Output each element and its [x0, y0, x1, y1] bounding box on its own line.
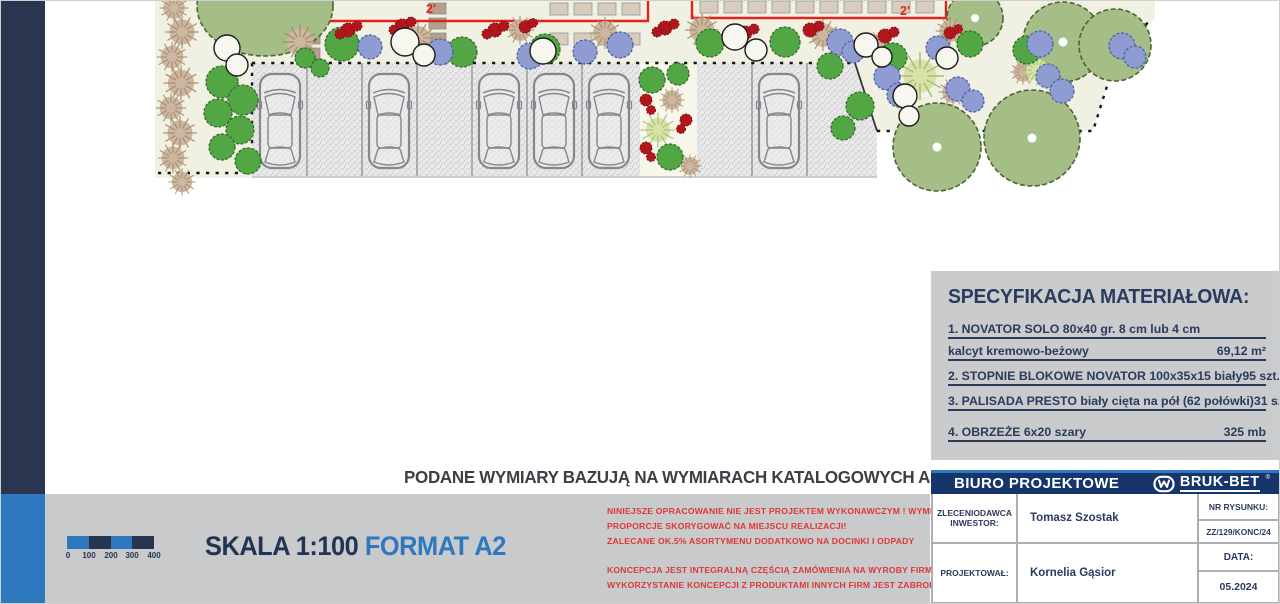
designer-label: PROJEKTOWAŁ: [933, 544, 1016, 602]
spec-item-value: 325 mb [1224, 425, 1266, 439]
scale-bar [67, 536, 154, 549]
scale-bar-segment [67, 536, 89, 549]
scale-tick-label: 400 [147, 551, 160, 560]
date-value: 05.2024 [1197, 572, 1278, 602]
spec-item-name: 2. STOPNIE BLOKOWE NOVATOR 100x35x15 bia… [948, 369, 1242, 383]
scale-bar-segment [132, 536, 154, 549]
client-name: Tomasz Szostak [1016, 494, 1197, 544]
drawing-number: ZZ/129/KONC/24 [1197, 521, 1278, 544]
spec-item: 2. STOPNIE BLOKOWE NOVATOR 100x35x15 bia… [948, 369, 1266, 386]
disclaimer-line: NINIEJSZE OPRACOWANIE NIE JEST PROJEKTEM… [607, 504, 952, 519]
spec-item-name: 3. PALISADA PRESTO biały cięta na pół (6… [948, 394, 1254, 408]
spec-item: 3. PALISADA PRESTO biały cięta na pół (6… [948, 394, 1266, 411]
left-rail-blue [0, 494, 45, 604]
spec-item-value: 95 szt. [1242, 369, 1280, 383]
scale-value: SKALA 1:100 [205, 531, 358, 561]
office-title: BIURO PROJEKTOWE [954, 475, 1119, 492]
scale-title: SKALA 1:100 FORMAT A2 [205, 531, 506, 562]
spec-item-name: 1. NOVATOR SOLO 80x40 gr. 8 cm lub 4 cm [948, 322, 1200, 336]
area-label: 2' [900, 4, 910, 18]
spec-item-value: 31 szt. [1254, 394, 1280, 408]
drawing-sheet: 2' 2' [0, 0, 1280, 604]
area-label: 2' [426, 2, 436, 16]
disclaimer-line: WYKORZYSTANIE KONCEPCJI Z PRODUKTAMI INN… [607, 578, 952, 593]
material-specification: SPECYFIKACJA MATERIAŁOWA: 1. NOVATOR SOL… [931, 271, 1280, 460]
brukbet-logo-icon [1153, 475, 1175, 493]
site-plan-drawing: 2' 2' [0, 0, 1280, 235]
scale-bar-segment [111, 536, 132, 549]
scale-bar-labels: 0 100 200 300 400 [67, 551, 154, 561]
format-value: FORMAT A2 [365, 531, 506, 561]
date-label: DATA: [1197, 544, 1278, 572]
spec-item-name: 4. OBRZEŻE 6x20 szary [948, 425, 1086, 439]
disclaimer-line: PROPORCJE SKORYGOWAĆ NA MIEJSCU REALIZAC… [607, 519, 952, 534]
title-block-header: BIURO PROJEKTOWE BRUK-BET ® [931, 470, 1280, 494]
project-info-table: ZLECENIODAWCA INWESTOR: Tomasz Szostak N… [931, 494, 1280, 604]
disclaimer-line: ZALECANE OK.5% ASORTYMENU DODATKOWO NA D… [607, 534, 952, 549]
disclaimer-line: KONCEPCJA JEST INTEGRALNĄ CZĘŚCIĄ ZAMÓWI… [607, 563, 952, 578]
spec-item: 4. OBRZEŻE 6x20 szary 325 mb [948, 425, 1266, 442]
scale-tick-label: 0 [66, 551, 70, 560]
drawing-number-label: NR RYSUNKU: [1197, 494, 1278, 521]
scale-tick-label: 200 [104, 551, 117, 560]
brand-name: BRUK-BET [1180, 475, 1260, 492]
spec-item: kalcyt kremowo-beżowy 69,12 m² [948, 344, 1266, 361]
registered-mark: ® [1266, 475, 1270, 481]
spec-item-value: 69,12 m² [1217, 344, 1266, 358]
scale-bar-segment [89, 536, 111, 549]
scale-tick-label: 300 [125, 551, 138, 560]
client-label-line: ZLECENIODAWCA [937, 508, 1012, 519]
spec-item: 1. NOVATOR SOLO 80x40 gr. 8 cm lub 4 cm [948, 322, 1266, 339]
scale-tick-label: 100 [82, 551, 95, 560]
client-label: ZLECENIODAWCA INWESTOR: [933, 494, 1016, 544]
footer-band: 0 100 200 300 400 SKALA 1:100 FORMAT A2 … [45, 494, 930, 604]
brand-logo: BRUK-BET ® [1153, 475, 1270, 493]
designer-name: Kornelia Gąsior [1016, 544, 1197, 602]
spec-item-name: kalcyt kremowo-beżowy [948, 344, 1089, 358]
spec-title: SPECYFIKACJA MATERIAŁOWA: [948, 286, 1249, 309]
client-label-line: INWESTOR: [950, 518, 998, 529]
disclaimer-text: NINIEJSZE OPRACOWANIE NIE JEST PROJEKTEM… [607, 504, 952, 593]
